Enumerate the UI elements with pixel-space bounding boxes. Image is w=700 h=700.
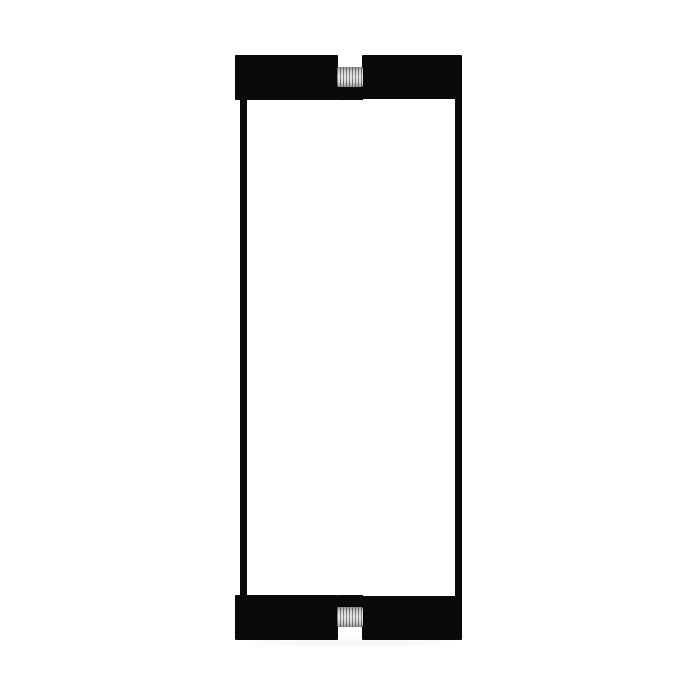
- handle-bar-left: [240, 97, 247, 598]
- mounting-pad-top-right: [362, 55, 462, 99]
- handle-bar-right: [455, 97, 462, 598]
- mounting-pad-bottom-right: [362, 596, 462, 640]
- threaded-stud-bottom-icon: [337, 607, 363, 627]
- mounting-pad-top-left: [235, 55, 338, 100]
- threaded-stud-top-icon: [337, 67, 363, 87]
- gap-fill-top: [338, 85, 363, 100]
- product-photo: [0, 0, 700, 700]
- pull-handle-assembly: [0, 0, 700, 700]
- ground-shadow: [250, 641, 450, 645]
- mounting-pad-bottom-left: [235, 595, 338, 640]
